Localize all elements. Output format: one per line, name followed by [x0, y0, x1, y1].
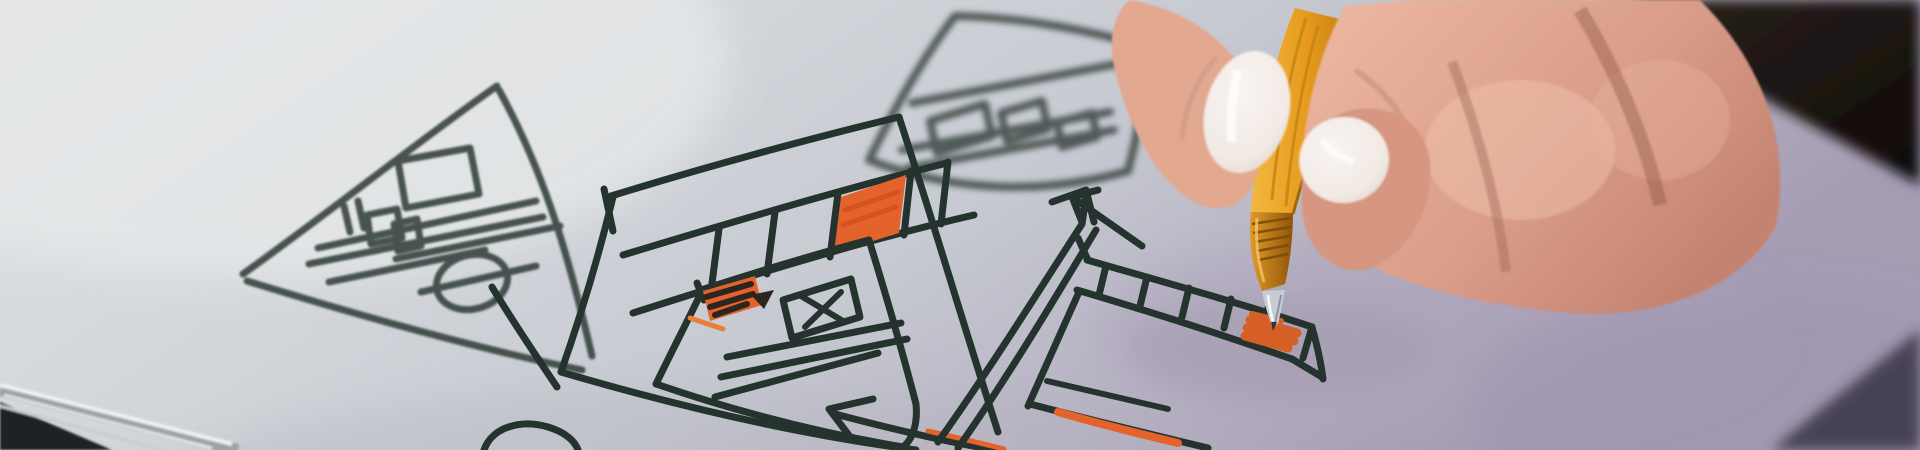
knuckle-highlight: [1425, 80, 1615, 220]
photo-stage: [0, 0, 1920, 450]
photo-canvas: [0, 0, 1920, 450]
